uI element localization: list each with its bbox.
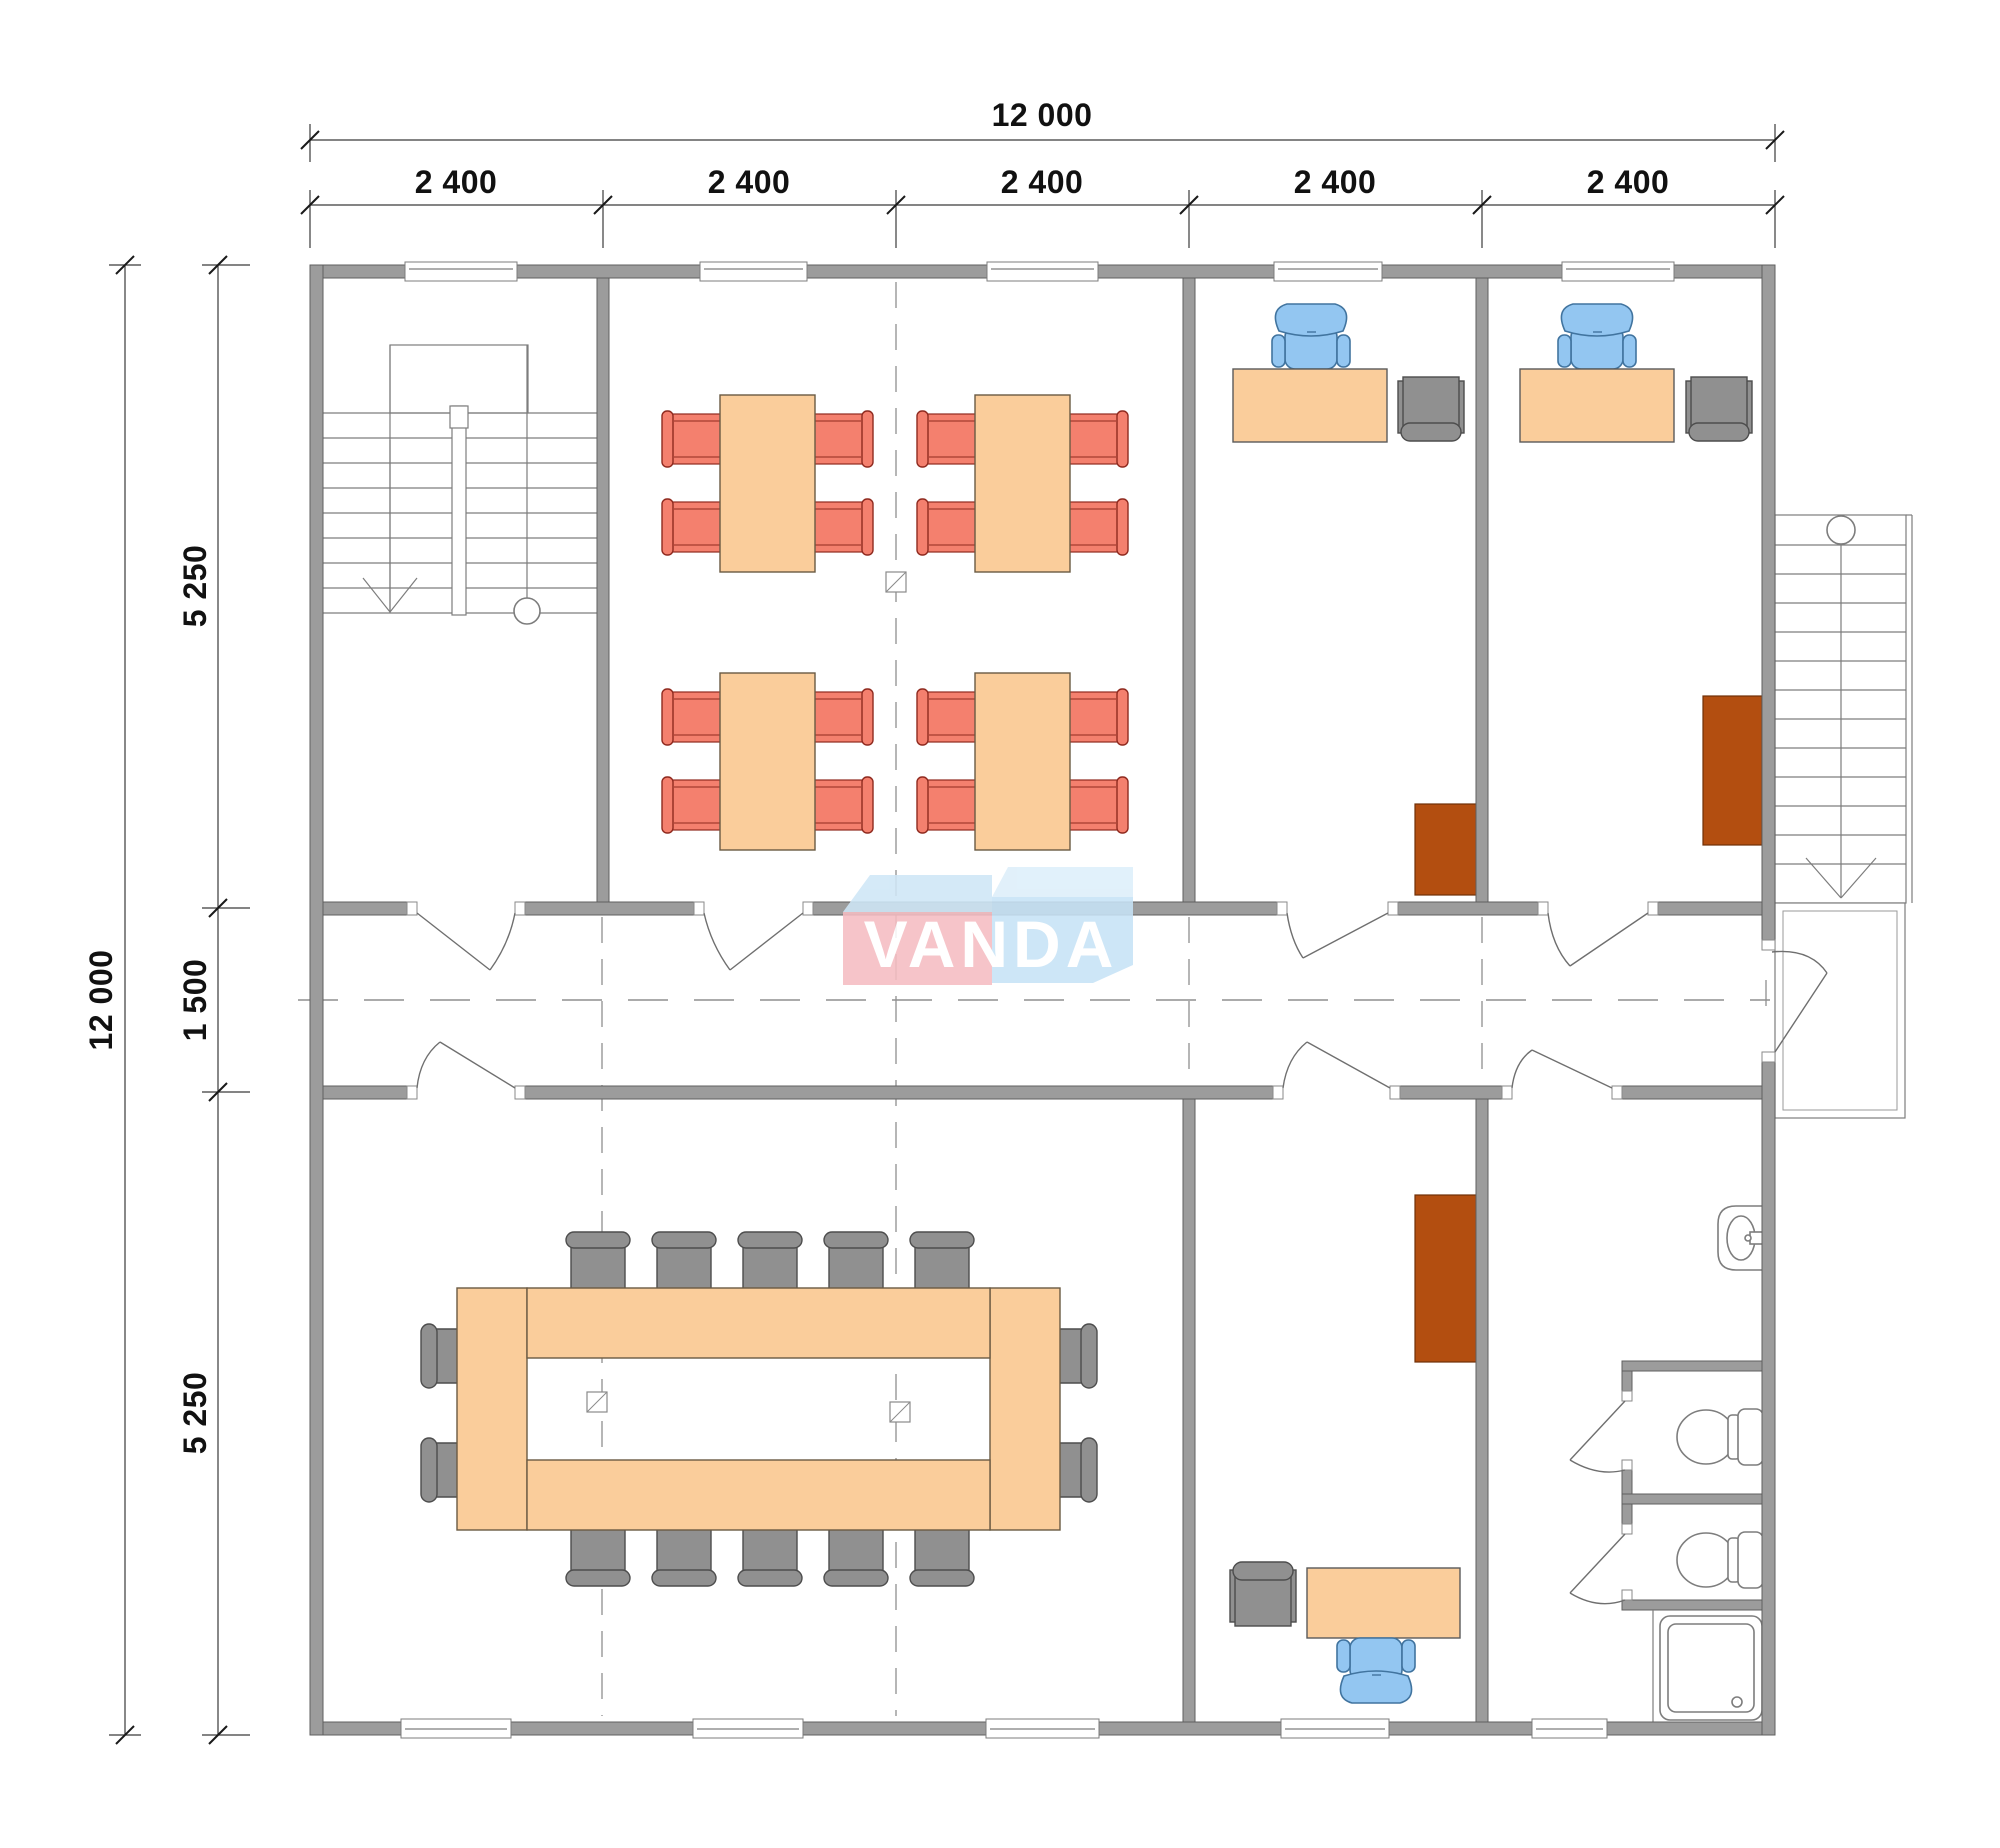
- floor-plan-canvas: 12 000 2 400 2 400 2 400 2 400 2 400: [0, 0, 2000, 1848]
- office-chair: [1272, 304, 1350, 369]
- dimension-label-overall-width: 12 000: [992, 97, 1093, 133]
- classroom-chair: [917, 777, 977, 833]
- stair-newel-circle: [514, 598, 540, 624]
- door-swing: [1548, 913, 1648, 966]
- guest-chair: [1398, 377, 1464, 441]
- guest-chair: [1230, 1562, 1296, 1626]
- toilet-icon: [1677, 1532, 1763, 1588]
- window: [986, 1719, 1099, 1738]
- window: [987, 262, 1098, 281]
- storage-cabinet: [1415, 804, 1477, 895]
- meeting-room: [421, 1232, 1097, 1586]
- interior-wall: [1183, 278, 1195, 902]
- conference-chair: [566, 1232, 630, 1294]
- dimension-label-segment: 2 400: [1001, 164, 1084, 200]
- conference-chair: [910, 1232, 974, 1294]
- logo-text: VANDA: [864, 907, 1119, 981]
- conference-chair: [566, 1524, 630, 1586]
- classroom-chair: [813, 499, 873, 555]
- sink-icon: [1718, 1206, 1768, 1270]
- exterior-wall-right: [1762, 265, 1775, 950]
- storage-cabinet: [1415, 1195, 1477, 1362]
- exterior-wall-right: [1762, 1052, 1775, 1735]
- bathroom: [1570, 1206, 1768, 1722]
- office-1: [1233, 304, 1477, 895]
- column-marker: [890, 1402, 910, 1422]
- conference-chair: [652, 1524, 716, 1586]
- conference-chair: [738, 1524, 802, 1586]
- dimension-label-segment: 5 250: [177, 1372, 213, 1455]
- floor-plan-page: 12 000 2 400 2 400 2 400 2 400 2 400: [0, 0, 2000, 1848]
- window: [405, 262, 517, 281]
- dimension-top: 12 000 2 400 2 400 2 400 2 400 2 400: [301, 97, 1784, 248]
- conference-table: [457, 1288, 1060, 1530]
- office-2: [1520, 304, 1762, 845]
- office-desk: [1233, 369, 1387, 442]
- door-swing: [704, 913, 803, 970]
- door-swing: [1283, 1042, 1390, 1088]
- classroom-chair: [662, 689, 722, 745]
- dimension-left: 12 000 5 250 1 500 5 250: [83, 256, 250, 1744]
- window: [1532, 1719, 1607, 1738]
- door-swing: [1512, 1050, 1612, 1088]
- column-marker: [587, 1392, 607, 1412]
- classroom-chair: [662, 499, 722, 555]
- classroom: [662, 395, 1128, 850]
- dimension-label-segment: 2 400: [1294, 164, 1377, 200]
- classroom-chair: [662, 411, 722, 467]
- door-swing: [417, 1042, 515, 1088]
- guest-chair: [1686, 377, 1752, 441]
- classroom-chair: [1068, 777, 1128, 833]
- classroom-table: [975, 395, 1070, 572]
- conference-chair: [652, 1232, 716, 1294]
- dimension-label-segment: 1 500: [177, 959, 213, 1042]
- classroom-chair: [813, 689, 873, 745]
- dimension-label-segment: 2 400: [708, 164, 791, 200]
- classroom-chair: [917, 411, 977, 467]
- interior-wall: [1183, 1099, 1195, 1722]
- dimension-label-overall-height: 12 000: [83, 950, 119, 1051]
- door-swing: [1287, 913, 1388, 958]
- door-swing: [417, 913, 515, 970]
- office-chair: [1558, 304, 1636, 369]
- window: [1562, 262, 1674, 281]
- column-marker: [886, 572, 906, 592]
- window: [700, 262, 807, 281]
- window: [1274, 262, 1382, 281]
- conference-chair: [738, 1232, 802, 1294]
- interior-staircase-icon: [323, 345, 597, 624]
- exterior-wall-left: [310, 265, 323, 1735]
- stair-down-arrow: [363, 440, 417, 612]
- classroom-table: [720, 673, 815, 850]
- stairwell: [323, 345, 597, 624]
- classroom-chair: [917, 499, 977, 555]
- classroom-chair: [1068, 499, 1128, 555]
- stair-newel-circle: [1827, 516, 1855, 544]
- office-desk: [1520, 369, 1674, 442]
- interior-wall: [1476, 278, 1488, 902]
- conference-chair: [824, 1524, 888, 1586]
- shower-icon: [1653, 1610, 1762, 1722]
- dimension-label-segment: 2 400: [415, 164, 498, 200]
- classroom-chair: [1068, 689, 1128, 745]
- window: [401, 1719, 511, 1738]
- classroom-chair: [1068, 411, 1128, 467]
- office-chair: [1337, 1638, 1415, 1703]
- logo-blue-top-face: [992, 867, 1133, 897]
- classroom-chair: [662, 777, 722, 833]
- classroom-table: [975, 673, 1070, 850]
- exterior-staircase-icon: [1775, 515, 1912, 1118]
- classroom-chair: [813, 777, 873, 833]
- conference-chair: [824, 1232, 888, 1294]
- dimension-label-segment: 2 400: [1587, 164, 1670, 200]
- storage-cabinet: [1703, 696, 1762, 845]
- dimension-label-segment: 5 250: [177, 545, 213, 628]
- office-3: [1230, 1195, 1477, 1703]
- door-swing: [1570, 1401, 1625, 1604]
- window: [1281, 1719, 1389, 1738]
- office-desk: [1307, 1568, 1460, 1638]
- logo-watermark: VANDA: [843, 867, 1133, 985]
- window: [693, 1719, 803, 1738]
- classroom-table: [720, 395, 815, 572]
- toilet-icon: [1677, 1409, 1763, 1465]
- classroom-chair: [813, 411, 873, 467]
- conference-chair: [910, 1524, 974, 1586]
- interior-wall: [1476, 1099, 1488, 1722]
- exterior-landing: [1775, 903, 1905, 1118]
- classroom-chair: [917, 689, 977, 745]
- interior-wall: [597, 278, 609, 902]
